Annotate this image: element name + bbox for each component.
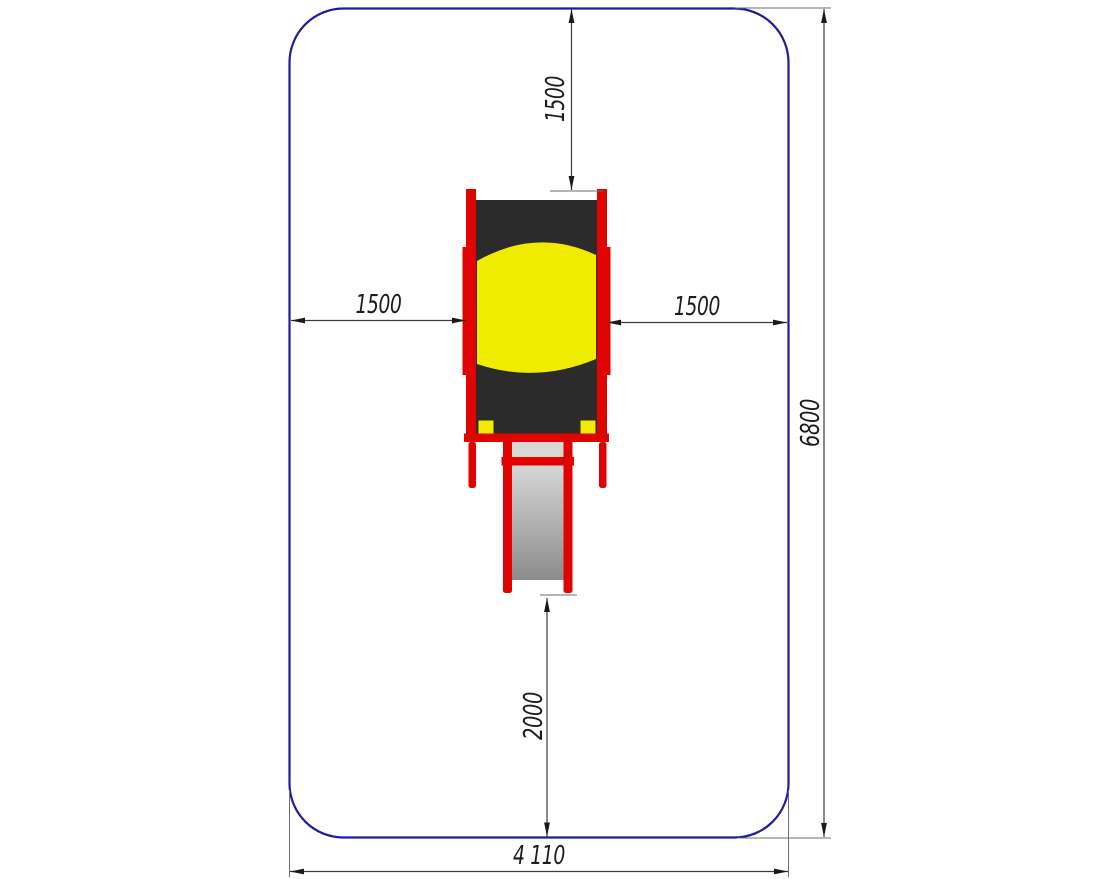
- label-top-clearance: 1500: [541, 76, 571, 122]
- base-beam: [464, 434, 609, 443]
- tower-frame-right-flange: [606, 247, 611, 375]
- label-left-clearance: 1500: [356, 290, 402, 320]
- corner-pad-left: [479, 421, 494, 434]
- dimension-labels: 1500 1500 1500 6800 2000 4 110: [356, 76, 827, 871]
- roof-panel-yellow: [477, 242, 596, 373]
- support-post-right: [599, 442, 607, 488]
- support-post-left: [469, 442, 477, 488]
- tower-frame-right: [597, 189, 607, 442]
- tower-frame-left: [466, 189, 476, 442]
- slide-chute-surface: [512, 466, 564, 581]
- plan-view-drawing: 1500 1500 1500 6800 2000 4 110: [0, 0, 1110, 879]
- slide-crossbar: [502, 457, 575, 466]
- label-right-clearance: 1500: [674, 292, 720, 322]
- label-zone-width: 4 110: [513, 841, 565, 871]
- corner-pad-right: [581, 421, 596, 434]
- tower-frame-left-flange: [463, 247, 468, 375]
- equipment-plan-view: [463, 189, 611, 593]
- label-zone-height: 6800: [796, 399, 826, 447]
- label-bottom-clearance: 2000: [519, 692, 549, 740]
- technical-drawing-canvas: 1500 1500 1500 6800 2000 4 110: [0, 0, 1110, 879]
- slide-entry-surface: [512, 442, 564, 458]
